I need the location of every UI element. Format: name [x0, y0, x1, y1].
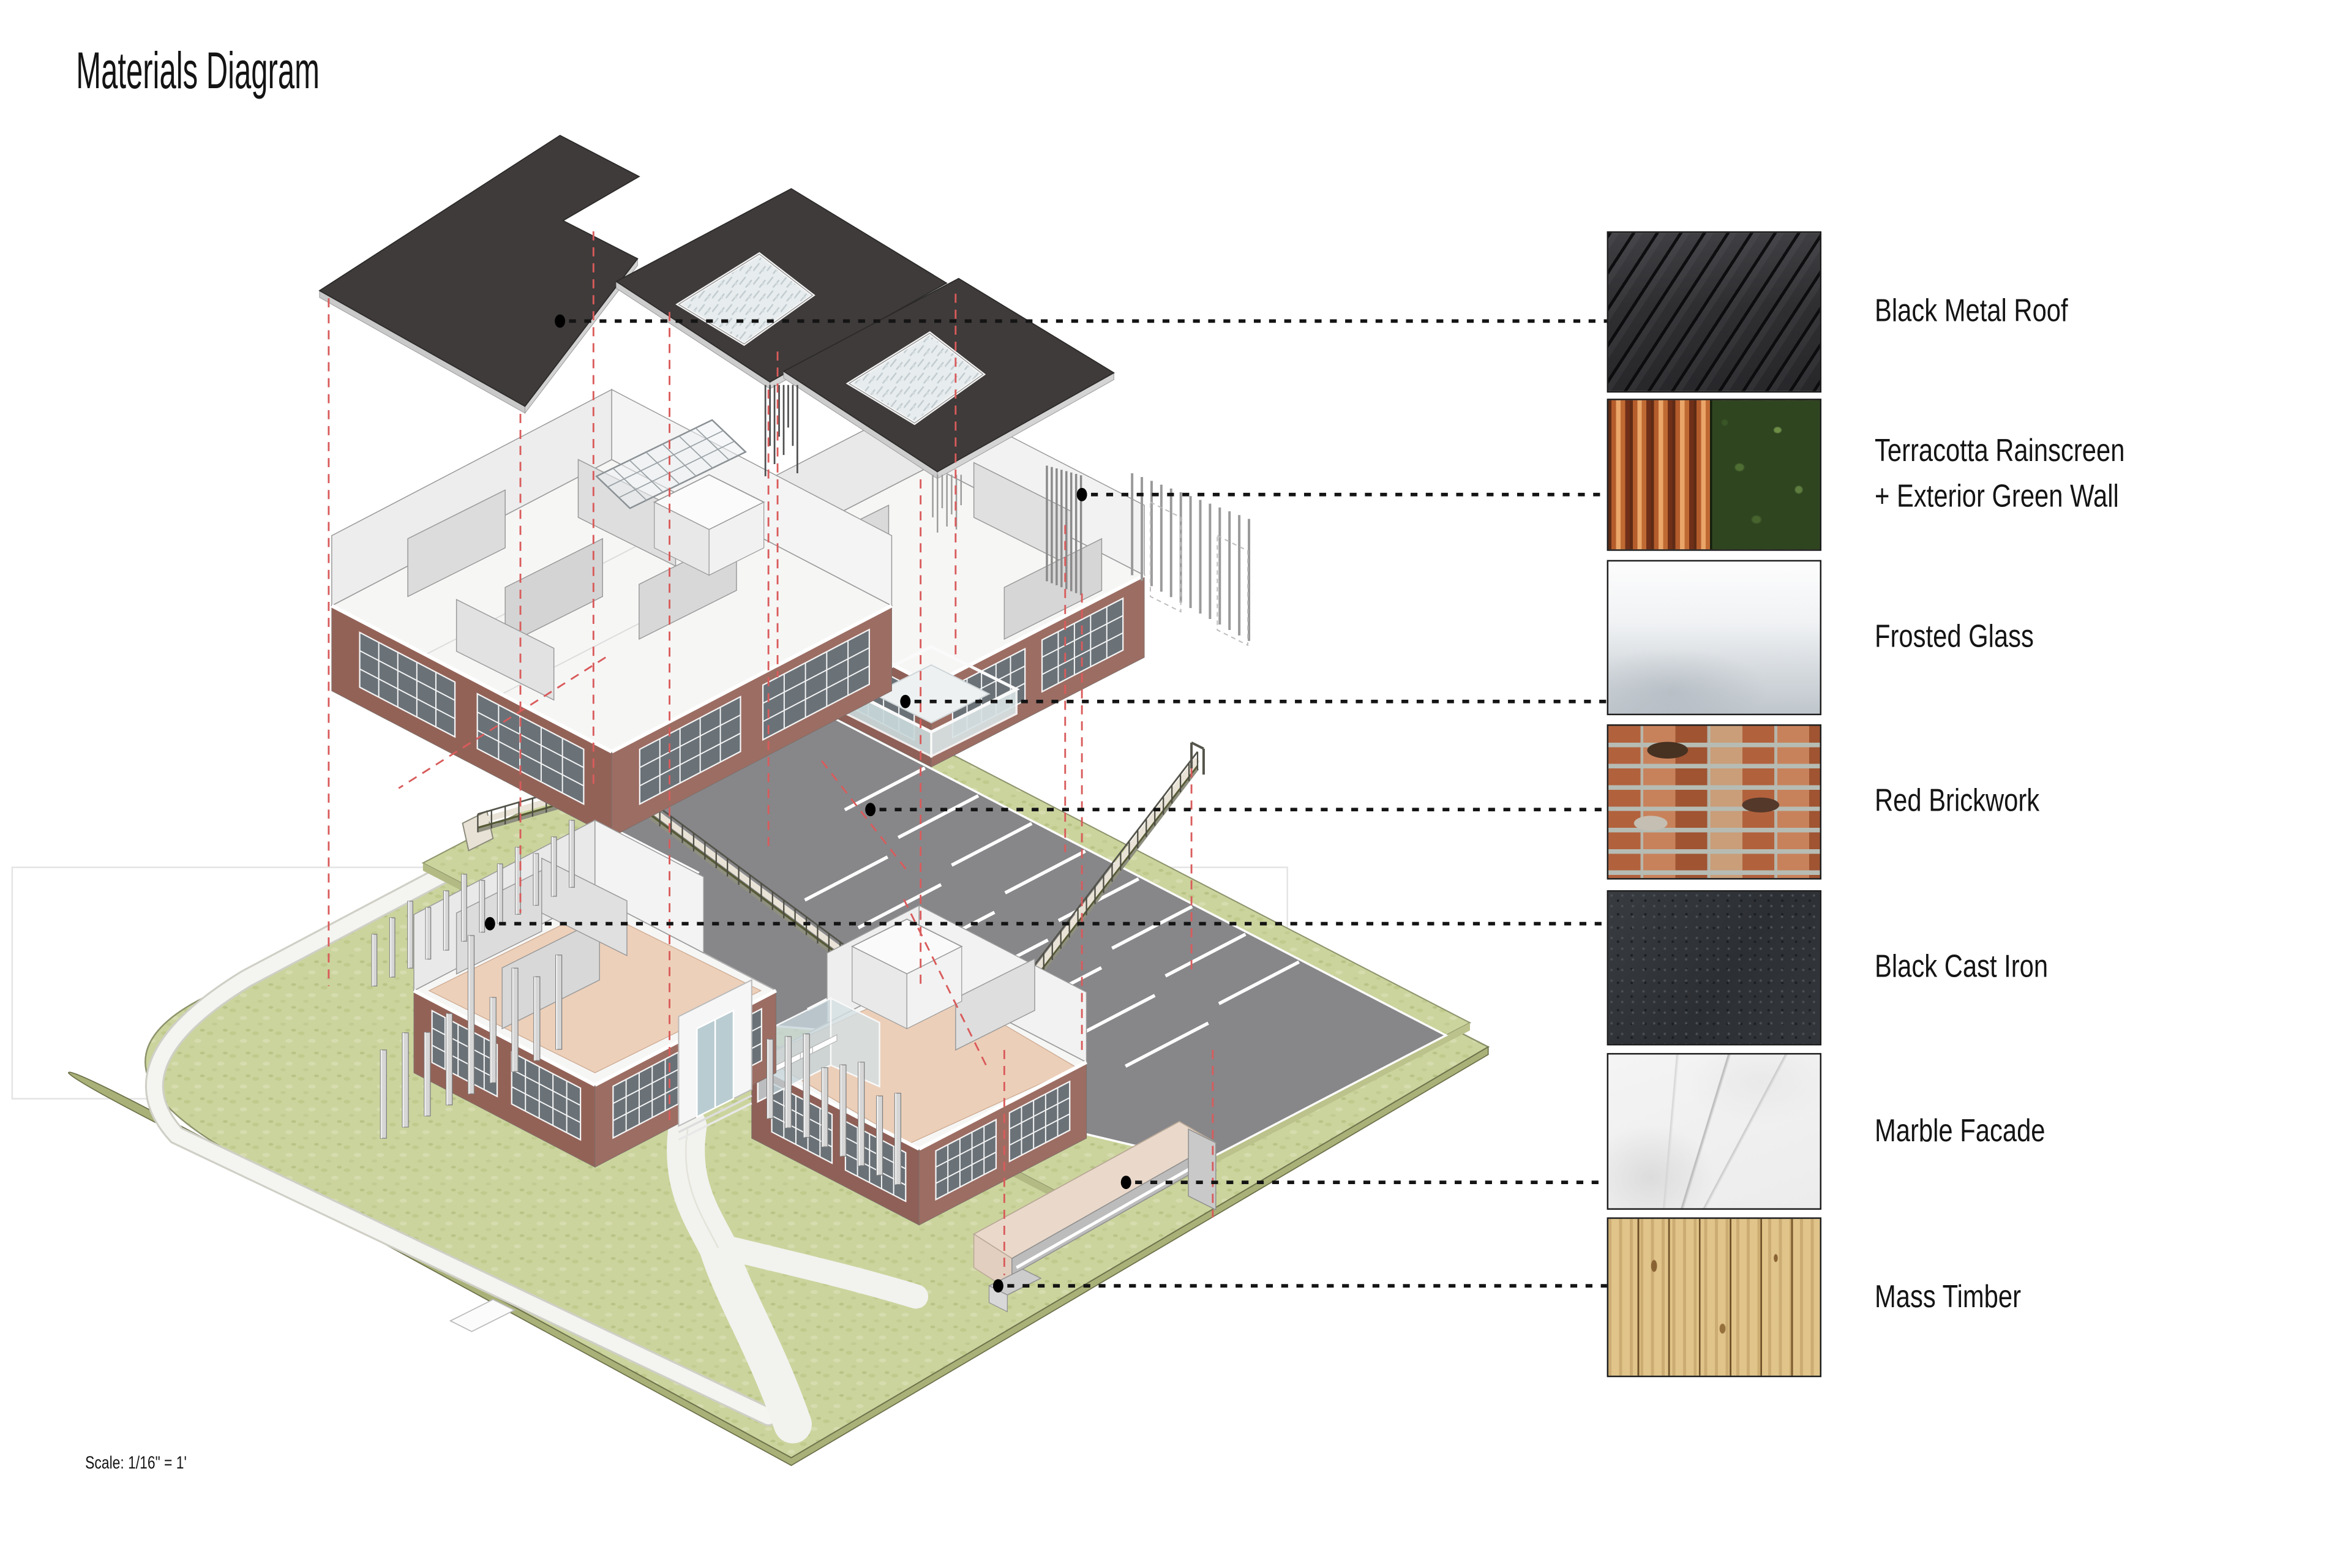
scale-note: Scale: 1/16" = 1' — [85, 1455, 212, 1473]
exploded-axonometric-drawing — [0, 0, 2351, 1568]
materials-diagram-page: Materials Diagram Black Metal Roof — [0, 0, 2351, 1568]
